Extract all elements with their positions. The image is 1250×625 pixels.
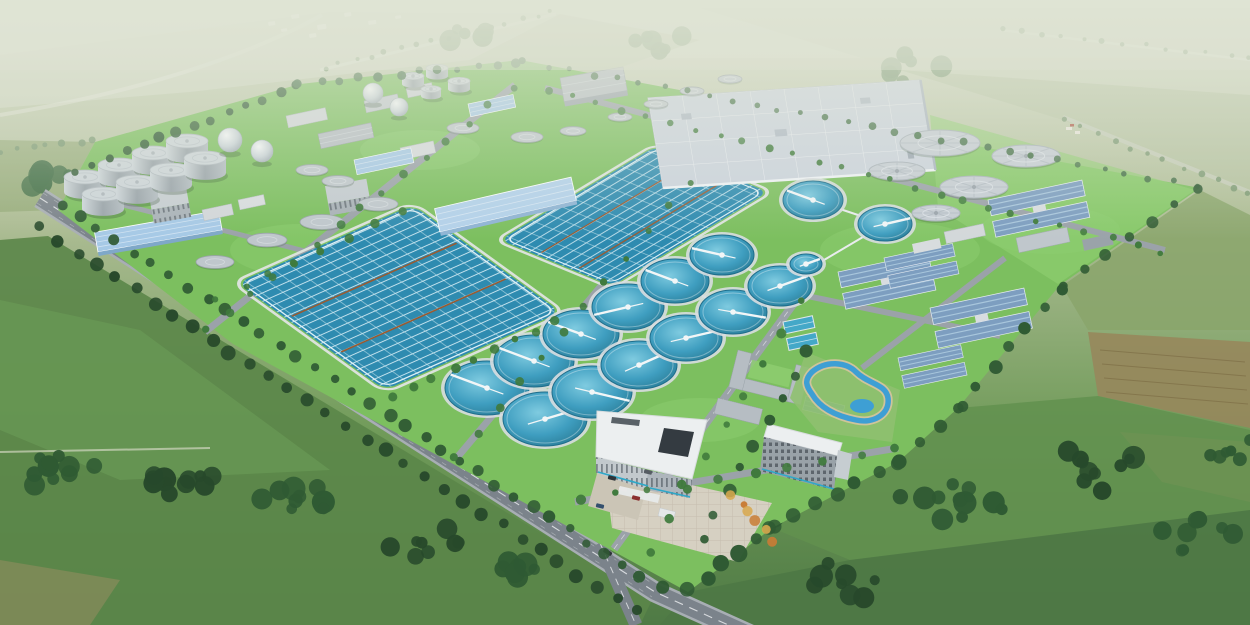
tree [439,484,450,495]
tree [264,270,271,277]
tree [202,326,209,333]
tree [890,444,899,453]
tree [664,514,674,524]
tree [145,466,163,484]
tree [132,282,143,293]
clarifier-hub [777,283,783,289]
tree [41,455,56,470]
tree [451,363,461,373]
tree [109,271,120,282]
tree [600,278,607,285]
tree [535,543,548,556]
tree [512,336,519,343]
tree [791,372,800,381]
tree [488,480,500,492]
tree [776,328,786,338]
tree [677,480,686,489]
tree [379,442,393,456]
tree [576,495,586,505]
tree [858,452,866,460]
tree [1153,521,1172,540]
tree [702,453,710,461]
tree [700,535,709,544]
tree [836,578,847,589]
tree [528,500,541,513]
tree [970,382,980,392]
tree [239,316,250,327]
tree [437,518,458,539]
tree [226,308,235,317]
tree [435,445,446,456]
tree [739,392,747,400]
tree [550,316,559,325]
tree [320,408,330,418]
tree [509,492,519,502]
tree [644,487,651,494]
tree [1080,265,1089,274]
tree [456,494,470,508]
tree [1099,249,1111,261]
tree [591,581,604,594]
tree [764,415,775,426]
tree [90,257,104,271]
tree [182,283,193,294]
tree [646,548,655,557]
tree [316,247,324,255]
tree [713,555,729,571]
tree [281,382,292,393]
tree [161,485,178,502]
tree [1057,284,1068,295]
tree [915,437,925,447]
tree [701,571,715,585]
tree [1213,450,1227,464]
aerial-rendering-stage [0,0,1250,625]
tree [247,291,253,297]
tree [212,296,218,302]
tree [539,355,545,361]
tree [416,537,428,549]
tree [759,360,766,367]
tree [146,258,155,267]
tree [384,409,397,422]
tree [751,533,762,544]
tree [24,475,45,496]
tree [786,508,800,522]
tree [318,503,330,515]
tree [996,503,1008,515]
tree [751,468,761,478]
tree [130,250,139,259]
tree [749,515,760,526]
tree [632,605,642,615]
tree [580,303,587,310]
tree [808,496,822,510]
tree [244,284,250,290]
tree [86,458,102,474]
tree [633,571,645,583]
tree [301,393,314,406]
tree [779,394,787,402]
tree [798,297,805,304]
tree [1157,251,1163,257]
tree [363,397,375,409]
clarifier-tank [786,251,826,277]
tree [724,421,730,427]
tree [149,297,163,311]
tree [518,534,529,545]
pond [850,399,874,413]
tree [514,552,538,576]
clarifier-hub [803,261,809,267]
clarifier-hub [672,278,678,284]
tree [560,328,569,337]
tree [470,356,477,363]
tree [450,453,458,461]
tree [407,548,424,565]
tree [934,420,947,433]
tree [953,403,964,414]
tree [286,503,297,514]
tree [331,375,339,383]
tree [452,536,464,548]
tree [388,392,397,401]
tree [1216,522,1228,534]
tree [618,560,627,569]
clarifier-hub [531,358,537,364]
tree [1114,459,1127,472]
tree [203,467,222,486]
tree [709,511,718,520]
tree [613,593,623,603]
tree [473,465,484,476]
clarifier-hub [719,252,725,258]
tree [782,463,791,472]
tree [612,489,618,495]
tree [179,470,197,488]
tree [818,457,827,466]
tree [566,524,574,532]
tree [831,487,845,501]
clarifier-hub [542,416,548,422]
tree [1077,457,1089,469]
tree [276,341,285,350]
tree [254,328,265,339]
clarifier-hub [589,389,595,395]
tree [164,270,173,279]
tree [1040,303,1050,313]
tree [499,519,509,529]
clarifier-hub [730,309,736,315]
tree [736,463,744,471]
tree [947,478,959,490]
tree [289,350,301,362]
tree [1190,511,1207,528]
tank-top [196,256,234,269]
tree [656,581,669,594]
tree [381,537,400,556]
clarifier-hub [636,362,642,368]
tree [61,465,78,482]
tree [341,421,350,430]
clarifier-hub [625,304,631,310]
tree [1135,241,1142,248]
tree [475,430,483,438]
tree [398,459,407,468]
tree [74,249,84,259]
tree [870,575,880,585]
tree [730,545,747,562]
tree [822,557,835,570]
tree [47,473,59,485]
tree [913,486,936,509]
tree [420,471,430,481]
tree [800,345,813,358]
tree [421,432,431,442]
tree [623,256,629,262]
tree [362,435,373,446]
tree [742,506,752,516]
tree [244,358,255,369]
horizon-glow [0,0,1250,70]
tree [874,466,886,478]
roof-courtyard-shadow [658,428,694,457]
tree [964,492,974,502]
tree [474,508,487,521]
tree [932,509,954,531]
tree [251,488,272,509]
tree [221,346,236,361]
tree [515,377,524,386]
tree [409,382,418,391]
tree [543,510,555,522]
tree [496,403,505,412]
clarifier-hub [484,385,490,391]
tree [746,440,759,453]
tree [207,334,220,347]
tree [166,309,178,321]
tree [569,569,583,583]
tree [426,374,435,383]
tree [347,387,355,395]
tree [550,554,564,568]
tree [490,344,500,354]
tree [532,328,540,336]
tree [186,319,200,333]
tree [680,582,695,597]
tree [989,360,1003,374]
tree [893,489,908,504]
tree [726,490,736,500]
tree [1003,341,1014,352]
tree [1018,322,1031,335]
tree [582,540,590,548]
clarifier-hub [683,335,689,341]
small-gray-tank [196,256,234,270]
tree [1093,481,1112,500]
tree [848,476,861,489]
tree [767,537,777,547]
tree [891,457,905,471]
tree [293,490,307,504]
tree [1176,544,1188,556]
tree [598,548,610,560]
tree [762,525,771,534]
tree [314,242,321,249]
tree [1226,446,1237,457]
tree [270,480,290,500]
tree [290,260,298,268]
tree [713,475,722,484]
tree [1076,473,1091,488]
tree [398,419,411,432]
treatment-plant-aerial-rendering [0,0,1250,625]
clarifier-hub [578,331,584,337]
tree [311,363,319,371]
tree [263,370,273,380]
